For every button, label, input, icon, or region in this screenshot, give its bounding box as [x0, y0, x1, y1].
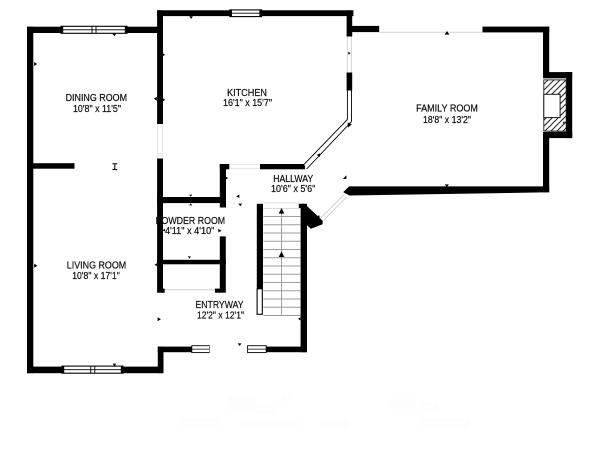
svg-text:LIVING ROOM: LIVING ROOM — [67, 261, 127, 272]
svg-text:DINING ROOM: DINING ROOM — [66, 93, 127, 104]
svg-text:10'6" x 5'6": 10'6" x 5'6" — [271, 184, 316, 195]
svg-text:FAMILY ROOM: FAMILY ROOM — [416, 104, 478, 115]
svg-text:16'1" x 15'7": 16'1" x 15'7" — [223, 98, 272, 109]
svg-text:10'8" x 17'1": 10'8" x 17'1" — [72, 271, 120, 282]
svg-text:18'8" x 13'2": 18'8" x 13'2" — [423, 115, 471, 126]
svg-text:10'8" x 11'5": 10'8" x 11'5" — [73, 104, 121, 115]
svg-text:12'2" x 12'1": 12'2" x 12'1" — [197, 310, 244, 321]
svg-text:4'11" x 4'10": 4'11" x 4'10" — [165, 226, 215, 237]
